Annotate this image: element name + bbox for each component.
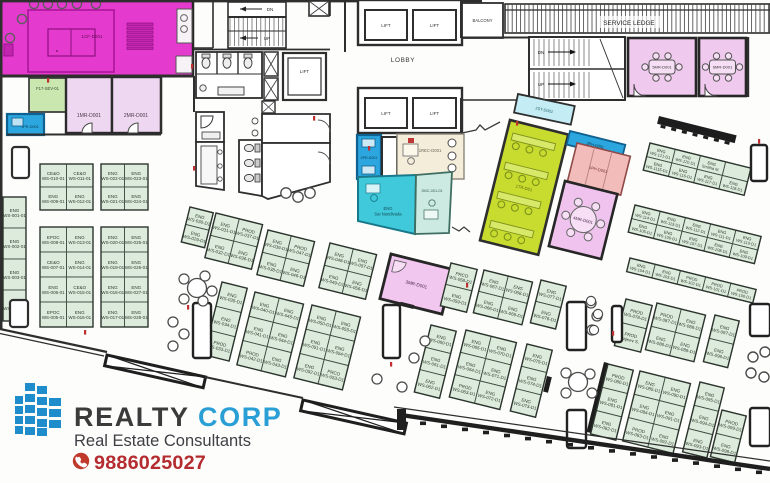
svg-text:WS-025-01: WS-025-01 xyxy=(125,240,148,245)
svg-text:5MR-D001: 5MR-D001 xyxy=(652,65,672,70)
svg-text:ENG: ENG xyxy=(383,206,392,211)
svg-text:WS-027-01: WS-027-01 xyxy=(125,290,148,295)
svg-text:LIFT: LIFT xyxy=(430,111,440,116)
svg-text:9886025027: 9886025027 xyxy=(94,452,206,474)
svg-text:WS-005-01: WS-005-01 xyxy=(42,315,65,320)
svg-text:F17-SEV-01: F17-SEV-01 xyxy=(36,86,59,91)
svg-text:WS-026-01: WS-026-01 xyxy=(125,265,148,270)
svg-text:6MR-D001: 6MR-D001 xyxy=(713,65,733,70)
svg-text:Sai Nandivada: Sai Nandivada xyxy=(374,212,402,217)
svg-text:2PR-D001: 2PR-D001 xyxy=(361,156,378,160)
svg-text:WS-012-01: WS-012-01 xyxy=(68,199,91,204)
svg-text:WS-020-01: WS-020-01 xyxy=(101,240,124,245)
svg-text:WS-014-01: WS-014-01 xyxy=(68,265,91,270)
svg-text:WS-011-01: WS-011-01 xyxy=(69,176,92,181)
svg-text:WS-006-01: WS-006-01 xyxy=(42,290,65,295)
svg-text:WS-016-01: WS-016-01 xyxy=(68,315,91,320)
svg-text:WS-003-01: WS-003-01 xyxy=(3,275,26,280)
svg-text:WS-019-01: WS-019-01 xyxy=(101,265,124,270)
svg-text:2MR-D001: 2MR-D001 xyxy=(124,113,148,119)
svg-text:SERVICE LEDGE: SERVICE LEDGE xyxy=(603,20,654,27)
svg-text:WS-008-01: WS-008-01 xyxy=(42,240,65,245)
svg-text:Real Estate Consultants: Real Estate Consultants xyxy=(74,432,251,450)
svg-text:WS-023-01: WS-023-01 xyxy=(125,176,148,181)
svg-text:WS-013-01: WS-013-01 xyxy=(68,240,91,245)
svg-text:1PR-D001: 1PR-D001 xyxy=(21,125,39,129)
svg-text:1CF-D001: 1CF-D001 xyxy=(81,34,103,39)
svg-text:DN: DN xyxy=(538,50,544,55)
svg-text:2MC-001-01: 2MC-001-01 xyxy=(421,189,442,193)
svg-text:WS-024-01: WS-024-01 xyxy=(125,199,148,204)
svg-text:LIFT: LIFT xyxy=(300,69,310,74)
svg-text:WS-007-01: WS-007-01 xyxy=(42,265,65,270)
svg-text:WS-001-01: WS-001-01 xyxy=(3,213,26,218)
svg-text:1MR-D001: 1MR-D001 xyxy=(77,113,101,119)
svg-text:UP: UP xyxy=(538,82,544,87)
svg-text:WS-018-01: WS-018-01 xyxy=(101,290,124,295)
svg-text:WS-017-01: WS-017-01 xyxy=(101,315,124,320)
svg-text:REALTY: REALTY xyxy=(74,402,190,432)
svg-text:DN: DN xyxy=(267,7,274,12)
svg-text:WS-009-01: WS-009-01 xyxy=(42,199,65,204)
svg-text:LIFT: LIFT xyxy=(381,23,391,28)
svg-text:CORP: CORP xyxy=(198,402,282,432)
svg-text:BALCONY: BALCONY xyxy=(472,18,492,23)
svg-text:WS-002-01: WS-002-01 xyxy=(3,244,26,249)
svg-text:LOBBY: LOBBY xyxy=(391,57,415,64)
svg-text:LIFT: LIFT xyxy=(381,111,391,116)
svg-text:WS-022-01: WS-022-01 xyxy=(101,176,124,181)
svg-text:LIFT: LIFT xyxy=(430,23,440,28)
svg-text:WS-010-01: WS-010-01 xyxy=(42,176,65,181)
svg-text:UP: UP xyxy=(264,36,270,41)
svg-text:1REC-D001: 1REC-D001 xyxy=(419,148,442,153)
svg-text:WS-021-01: WS-021-01 xyxy=(101,199,124,204)
svg-text:WS-015-01: WS-015-01 xyxy=(68,290,91,295)
svg-text:WS-028-01: WS-028-01 xyxy=(125,315,148,320)
